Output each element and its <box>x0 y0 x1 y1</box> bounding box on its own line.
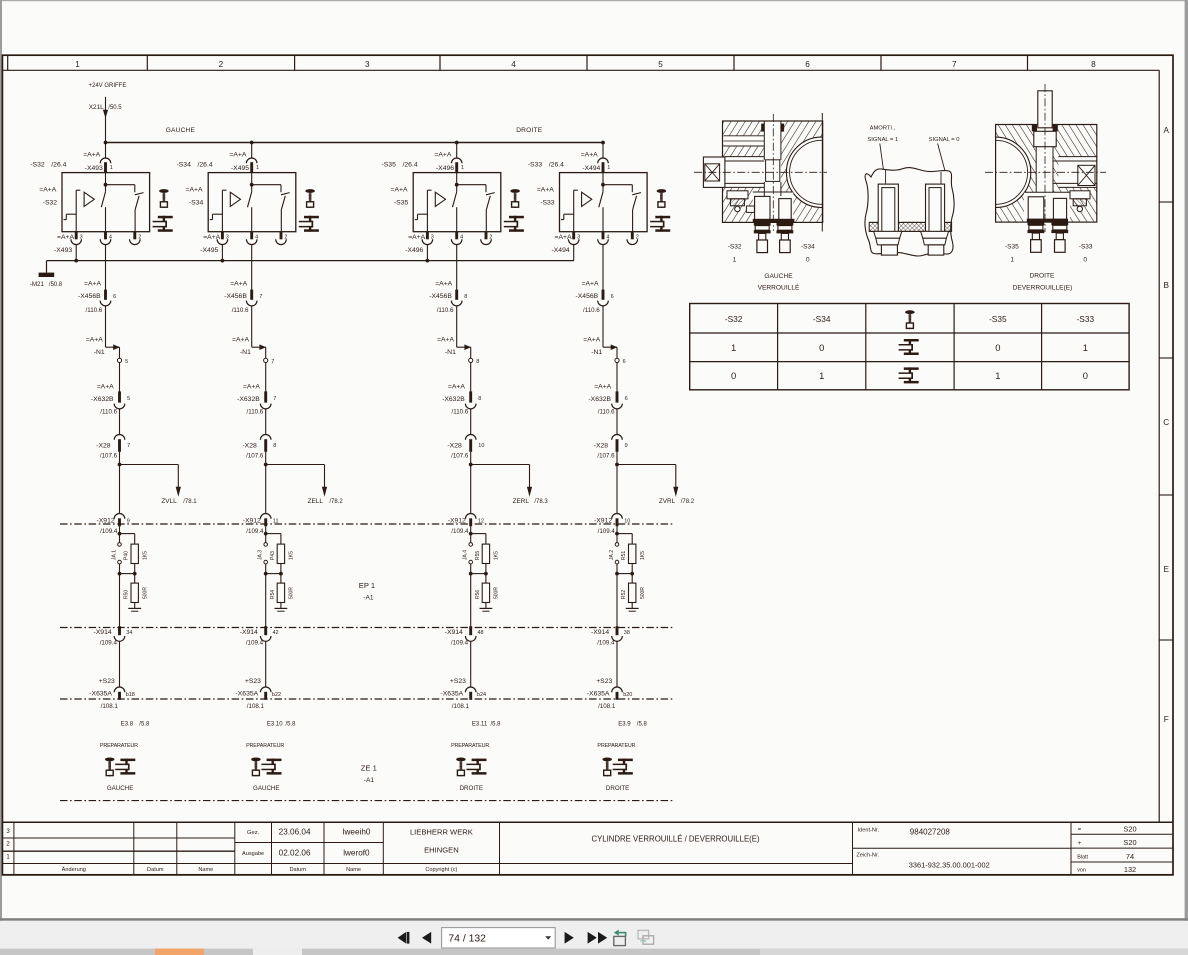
svg-text:7: 7 <box>127 443 130 449</box>
svg-text:2: 2 <box>636 235 639 241</box>
svg-text:38: 38 <box>624 630 630 636</box>
svg-text:0: 0 <box>731 370 736 381</box>
svg-text:500R: 500R <box>289 587 295 599</box>
svg-text:1: 1 <box>75 60 80 69</box>
svg-text:0: 0 <box>819 342 824 353</box>
svg-text:6: 6 <box>805 60 810 69</box>
svg-text:+S23: +S23 <box>450 678 466 685</box>
svg-text:/5.8: /5.8 <box>491 722 502 728</box>
svg-text:=A+A: =A+A <box>230 281 247 288</box>
svg-text:23.06.04: 23.06.04 <box>279 827 311 836</box>
svg-text:Ident-Nr.: Ident-Nr. <box>858 827 880 833</box>
svg-text:2: 2 <box>219 60 224 69</box>
svg-text:/78.2: /78.2 <box>329 499 343 505</box>
svg-text:1: 1 <box>995 370 1000 381</box>
svg-text:=A+A: =A+A <box>243 383 260 390</box>
svg-text:E3.11: E3.11 <box>472 722 488 728</box>
svg-text:E3.8: E3.8 <box>121 722 134 728</box>
svg-text:7: 7 <box>952 60 957 69</box>
svg-text:A: A <box>1163 126 1169 135</box>
svg-text:/107.6: /107.6 <box>100 453 118 460</box>
svg-text:-X494: -X494 <box>582 165 600 172</box>
svg-text:-S32: -S32 <box>43 199 58 206</box>
svg-text:-X494: -X494 <box>552 247 570 254</box>
svg-text:-S35: -S35 <box>394 199 409 206</box>
svg-text:lwerof0: lwerof0 <box>343 848 370 857</box>
svg-text:-X28: -X28 <box>96 442 111 449</box>
svg-text:-X632B: -X632B <box>588 396 611 403</box>
svg-text:GAUCHE: GAUCHE <box>764 273 793 280</box>
svg-text:-S33: -S33 <box>540 199 555 206</box>
svg-text:/110.6: /110.6 <box>100 408 117 415</box>
svg-text:R52: R52 <box>621 590 627 599</box>
svg-text:=A+A: =A+A <box>186 187 203 194</box>
svg-text:/109.4: /109.4 <box>597 640 615 647</box>
svg-text:/107.6: /107.6 <box>246 453 264 460</box>
svg-text:-X493: -X493 <box>54 247 72 254</box>
svg-text:-X635A: -X635A <box>89 691 112 698</box>
svg-text:/109.4: /109.4 <box>451 640 469 647</box>
svg-text:/109.4: /109.4 <box>451 528 469 535</box>
svg-text:-X635A: -X635A <box>441 691 464 698</box>
svg-text:PREPARATEUR: PREPARATEUR <box>100 743 138 749</box>
svg-text:ZVLL: ZVLL <box>161 498 177 505</box>
svg-text:/108.1: /108.1 <box>452 703 470 710</box>
svg-text:2: 2 <box>284 235 287 241</box>
svg-text:F: F <box>1164 715 1169 724</box>
svg-text:+S23: +S23 <box>245 678 261 685</box>
svg-text:-X495: -X495 <box>231 165 249 172</box>
svg-text:=A+A: =A+A <box>391 187 408 194</box>
svg-text:Name: Name <box>346 867 361 873</box>
svg-text:lweeih0: lweeih0 <box>343 827 371 836</box>
svg-text:5: 5 <box>658 60 663 69</box>
svg-text:1K5: 1K5 <box>494 551 500 560</box>
svg-text:7: 7 <box>271 359 274 365</box>
svg-text:/109.4: /109.4 <box>246 640 264 647</box>
svg-text:/26.4: /26.4 <box>403 162 418 169</box>
svg-text:-X496: -X496 <box>405 247 423 254</box>
svg-text:SIGNAL = 1: SIGNAL = 1 <box>867 137 898 143</box>
svg-text:3: 3 <box>365 60 370 69</box>
svg-text:4: 4 <box>460 235 463 241</box>
svg-text:/50.8: /50.8 <box>49 282 63 288</box>
svg-text:ZELL: ZELL <box>308 498 324 505</box>
svg-text:DROITE: DROITE <box>606 785 629 792</box>
svg-text:EHINGEN: EHINGEN <box>424 845 459 854</box>
svg-text:S20: S20 <box>1123 824 1136 833</box>
svg-text:DROITE: DROITE <box>460 785 483 792</box>
svg-text:C: C <box>1163 418 1169 427</box>
svg-text:VERROUILLÉ: VERROUILLÉ <box>758 283 800 292</box>
svg-text:/26.4: /26.4 <box>198 162 213 169</box>
svg-text:8: 8 <box>476 359 479 365</box>
svg-text:48: 48 <box>478 630 484 636</box>
svg-text:SIGNAL = 0: SIGNAL = 0 <box>929 137 960 143</box>
svg-text:-X635A: -X635A <box>236 691 259 698</box>
svg-text:-X914: -X914 <box>94 629 112 636</box>
svg-text:1: 1 <box>731 342 736 353</box>
svg-text:/110.6: /110.6 <box>232 307 249 314</box>
svg-text:7: 7 <box>273 396 276 402</box>
svg-text:-X456B: -X456B <box>576 293 599 300</box>
svg-text:/109.4: /109.4 <box>100 640 118 647</box>
svg-text:1K5: 1K5 <box>143 551 149 560</box>
svg-text:-X28: -X28 <box>447 442 462 449</box>
svg-text:CYLINDRE VERROUILLÉ / DEVERROU: CYLINDRE VERROUILLÉ / DEVERROUILLE(E) <box>591 835 760 844</box>
svg-text:-X632B: -X632B <box>442 396 465 403</box>
svg-text:3: 3 <box>577 235 580 241</box>
svg-text:PREPARATEUR: PREPARATEUR <box>597 743 635 749</box>
svg-text:GAUCHE: GAUCHE <box>107 785 133 792</box>
svg-text:b24: b24 <box>477 692 486 698</box>
svg-text:=A+A: =A+A <box>437 337 454 344</box>
svg-text:-X914: -X914 <box>240 629 258 636</box>
svg-text:AMORTI ,: AMORTI , <box>870 125 896 131</box>
svg-text:-S34: -S34 <box>813 314 831 324</box>
svg-text:6: 6 <box>113 294 116 300</box>
svg-text:500R: 500R <box>143 587 149 599</box>
svg-text:/78.2: /78.2 <box>681 499 695 505</box>
svg-text:=A+A: =A+A <box>84 281 101 288</box>
svg-text:R55: R55 <box>475 551 481 560</box>
svg-text:DEVERROUILLE(E): DEVERROUILLE(E) <box>1013 284 1073 291</box>
svg-text:0: 0 <box>995 342 1000 353</box>
svg-text:500R: 500R <box>494 587 500 599</box>
svg-text:3: 3 <box>431 235 434 241</box>
svg-text:10: 10 <box>478 443 484 449</box>
svg-text:-N1: -N1 <box>591 349 602 356</box>
svg-text:=A+A: =A+A <box>232 337 249 344</box>
svg-text:+S23: +S23 <box>99 678 115 685</box>
svg-text:/26.4: /26.4 <box>51 162 66 169</box>
svg-text:=A+A: =A+A <box>448 383 465 390</box>
svg-text:74: 74 <box>1126 852 1134 861</box>
svg-text:-A1: -A1 <box>363 595 374 602</box>
svg-text:4: 4 <box>255 235 258 241</box>
svg-text:/110.6: /110.6 <box>452 408 469 415</box>
svg-text:2: 2 <box>138 235 141 241</box>
svg-text:/78.3: /78.3 <box>534 499 548 505</box>
svg-text:GAUCHE: GAUCHE <box>166 127 196 134</box>
svg-text:/109.4: /109.4 <box>246 528 264 535</box>
svg-text:Gez.: Gez. <box>247 830 260 836</box>
svg-text:-S35: -S35 <box>1005 243 1019 250</box>
svg-text:DROITE: DROITE <box>1030 273 1056 280</box>
svg-text:/5.8: /5.8 <box>139 722 150 728</box>
svg-text:2: 2 <box>489 235 492 241</box>
svg-text:-X28: -X28 <box>594 442 609 449</box>
svg-text:X21L: X21L <box>89 104 104 111</box>
svg-text:5: 5 <box>125 359 128 365</box>
svg-text:-S34: -S34 <box>177 162 192 169</box>
svg-text:/26.4: /26.4 <box>549 162 564 169</box>
svg-text:-N1: -N1 <box>94 349 105 356</box>
svg-text:-X456B: -X456B <box>224 293 247 300</box>
svg-text:R56: R56 <box>475 590 481 599</box>
svg-text:/5.8: /5.8 <box>637 722 648 728</box>
svg-text:-X914: -X914 <box>445 629 463 636</box>
svg-text:-X456B: -X456B <box>429 293 452 300</box>
svg-text:/78.1: /78.1 <box>183 499 197 505</box>
svg-text:42: 42 <box>273 630 279 636</box>
svg-text:Datum: Datum <box>147 867 164 873</box>
svg-text:1: 1 <box>819 370 824 381</box>
svg-text:E: E <box>1163 565 1169 574</box>
svg-text:S20: S20 <box>1123 838 1136 847</box>
svg-text:=A+A: =A+A <box>581 152 598 159</box>
svg-text:B: B <box>1163 281 1169 290</box>
svg-text:1: 1 <box>6 853 10 860</box>
svg-text:=A+A: =A+A <box>203 234 220 241</box>
svg-text:+S23: +S23 <box>596 678 612 685</box>
svg-text:P43: P43 <box>270 551 276 560</box>
svg-text:/108.1: /108.1 <box>247 703 265 710</box>
svg-text:=A+A: =A+A <box>229 152 246 159</box>
svg-text:Änderung: Änderung <box>62 866 86 873</box>
svg-text:-S35: -S35 <box>989 314 1007 324</box>
svg-text:-S32: -S32 <box>30 162 45 169</box>
svg-text:E3.10: E3.10 <box>267 722 283 728</box>
svg-text:5: 5 <box>127 396 130 402</box>
svg-text:E3.9: E3.9 <box>618 722 631 728</box>
svg-text:984027208: 984027208 <box>910 828 951 837</box>
svg-text:/110.6: /110.6 <box>583 307 600 314</box>
svg-text:6: 6 <box>611 294 614 300</box>
svg-text:Blatt: Blatt <box>1077 854 1088 860</box>
svg-text:8: 8 <box>464 294 467 300</box>
svg-text:02.02.06: 02.02.06 <box>279 848 311 857</box>
svg-text:=A+A: =A+A <box>537 187 554 194</box>
svg-text:/107.6: /107.6 <box>597 453 615 460</box>
svg-text:-X496: -X496 <box>436 165 454 172</box>
svg-text:/109.4: /109.4 <box>598 528 616 535</box>
svg-text:=A+A: =A+A <box>97 383 114 390</box>
svg-text:1: 1 <box>607 165 610 171</box>
svg-text:ZE 1: ZE 1 <box>361 763 377 772</box>
svg-text:Name: Name <box>198 867 213 873</box>
svg-text:Ausgabe: Ausgabe <box>242 851 264 857</box>
svg-text:=: = <box>1078 826 1082 833</box>
svg-text:R50: R50 <box>124 590 130 599</box>
svg-text:-X635A: -X635A <box>587 691 610 698</box>
svg-text:0: 0 <box>1083 370 1088 381</box>
svg-text:34: 34 <box>126 630 132 636</box>
svg-text:Zeich-Nr.: Zeich-Nr. <box>856 853 879 859</box>
svg-text:=A+A: =A+A <box>583 337 600 344</box>
svg-text:74 / 132: 74 / 132 <box>448 934 486 945</box>
svg-text:b18: b18 <box>126 692 135 698</box>
svg-text:JA.3: JA.3 <box>258 550 264 560</box>
svg-text:/110.6: /110.6 <box>86 307 103 314</box>
svg-text:8: 8 <box>1091 60 1096 69</box>
svg-text:8: 8 <box>273 443 276 449</box>
svg-text:-S35: -S35 <box>382 162 397 169</box>
svg-text:PREPARATEUR: PREPARATEUR <box>246 743 284 749</box>
svg-text:7: 7 <box>259 294 262 300</box>
svg-text:LIEBHERR WERK: LIEBHERR WERK <box>410 828 473 837</box>
svg-text:R54: R54 <box>270 590 276 599</box>
svg-text:=A+A: =A+A <box>86 337 103 344</box>
svg-text:8: 8 <box>478 396 481 402</box>
svg-text:JA.1: JA.1 <box>111 550 117 560</box>
svg-text:GAUCHE: GAUCHE <box>253 785 279 792</box>
svg-text:-N1: -N1 <box>240 349 251 356</box>
svg-text:3: 3 <box>80 235 83 241</box>
svg-text:3361-932.35.00.001-002: 3361-932.35.00.001-002 <box>909 860 990 869</box>
svg-text:b22: b22 <box>272 692 281 698</box>
svg-text:1K5: 1K5 <box>289 551 295 560</box>
svg-text:0: 0 <box>806 257 810 264</box>
svg-text:/108.1: /108.1 <box>598 703 616 710</box>
svg-text:/5.8: /5.8 <box>286 722 297 728</box>
svg-text:-X495: -X495 <box>200 247 218 254</box>
svg-text:1K5: 1K5 <box>640 551 646 560</box>
svg-text:1: 1 <box>110 165 113 171</box>
svg-text:-S34: -S34 <box>189 199 204 206</box>
svg-text:2: 2 <box>6 841 10 848</box>
svg-text:0: 0 <box>1083 257 1087 264</box>
svg-text:3: 3 <box>226 235 229 241</box>
svg-text:JA.2: JA.2 <box>609 550 615 560</box>
svg-text:-S32: -S32 <box>725 314 743 324</box>
svg-text:-X28: -X28 <box>242 442 257 449</box>
svg-text:4: 4 <box>511 60 516 69</box>
svg-text:1: 1 <box>461 165 464 171</box>
svg-text:Copyright (c): Copyright (c) <box>425 867 457 873</box>
svg-text:1: 1 <box>1010 257 1014 264</box>
svg-text:6: 6 <box>625 396 628 402</box>
svg-text:1: 1 <box>1083 342 1088 353</box>
svg-text:-S33: -S33 <box>528 162 543 169</box>
svg-text:4: 4 <box>109 235 112 241</box>
svg-text:500R: 500R <box>640 587 646 599</box>
svg-text:-X914: -X914 <box>591 629 609 636</box>
svg-text:R51: R51 <box>621 551 627 560</box>
svg-text:/50.5: /50.5 <box>108 105 122 111</box>
svg-text:P40: P40 <box>124 551 130 560</box>
svg-text:DROITE: DROITE <box>516 127 543 134</box>
svg-text:=A+A: =A+A <box>408 234 425 241</box>
svg-text:6: 6 <box>623 359 626 365</box>
svg-text:=A+A: =A+A <box>83 152 100 159</box>
svg-text:/108.1: /108.1 <box>101 703 119 710</box>
svg-text:-X456B: -X456B <box>78 293 101 300</box>
svg-text:=A+A: =A+A <box>555 234 572 241</box>
svg-text:b20: b20 <box>623 692 632 698</box>
svg-text:-X632B: -X632B <box>91 396 114 403</box>
svg-text:von: von <box>1077 868 1086 874</box>
svg-text:-M21: -M21 <box>30 281 45 288</box>
svg-text:-A1: -A1 <box>364 777 375 784</box>
svg-text:=A+A: =A+A <box>39 187 56 194</box>
svg-text:/110.6: /110.6 <box>437 307 454 314</box>
svg-text:PREPARATEUR: PREPARATEUR <box>451 743 489 749</box>
svg-text:=A+A: =A+A <box>435 281 452 288</box>
svg-text:1: 1 <box>733 257 737 264</box>
svg-text:/110.6: /110.6 <box>247 408 264 415</box>
svg-text:Datum: Datum <box>289 867 306 873</box>
svg-text:-N1: -N1 <box>445 349 456 356</box>
svg-text:/110.6: /110.6 <box>598 408 615 415</box>
svg-text:ZERL: ZERL <box>513 498 530 505</box>
svg-text:9: 9 <box>625 443 628 449</box>
svg-text:+24V GRIFFE: +24V GRIFFE <box>89 83 127 89</box>
svg-text:EP 1: EP 1 <box>359 581 375 590</box>
svg-text:ZVRL: ZVRL <box>659 498 676 505</box>
svg-text:JA.4: JA.4 <box>463 550 469 560</box>
svg-text:3: 3 <box>6 828 10 835</box>
svg-text:-S34: -S34 <box>801 243 815 250</box>
svg-text:-X493: -X493 <box>85 165 103 172</box>
svg-text:-S33: -S33 <box>1079 243 1093 250</box>
svg-text:=A+A: =A+A <box>582 281 599 288</box>
svg-text:-S33: -S33 <box>1077 314 1095 324</box>
svg-text:=A+A: =A+A <box>57 234 74 241</box>
svg-text:4: 4 <box>606 235 609 241</box>
svg-text:/109.4: /109.4 <box>100 528 118 535</box>
svg-text:/107.6: /107.6 <box>451 453 469 460</box>
svg-text:1: 1 <box>256 165 259 171</box>
svg-text:-S32: -S32 <box>728 243 742 250</box>
svg-text:=A+A: =A+A <box>434 152 451 159</box>
svg-text:+: + <box>1078 840 1082 847</box>
svg-text:132: 132 <box>1124 865 1136 874</box>
svg-text:-X632B: -X632B <box>237 396 260 403</box>
svg-text:=A+A: =A+A <box>594 383 611 390</box>
